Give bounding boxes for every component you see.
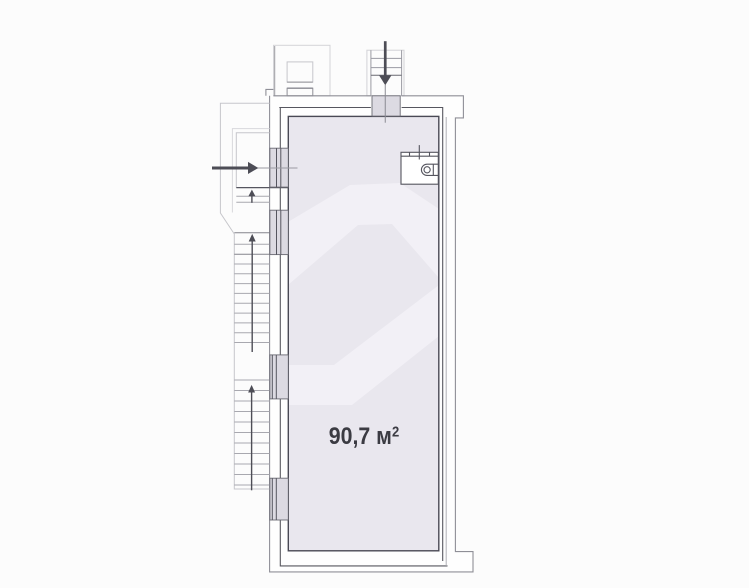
- svg-text:90,7 м2: 90,7 м2: [329, 422, 400, 450]
